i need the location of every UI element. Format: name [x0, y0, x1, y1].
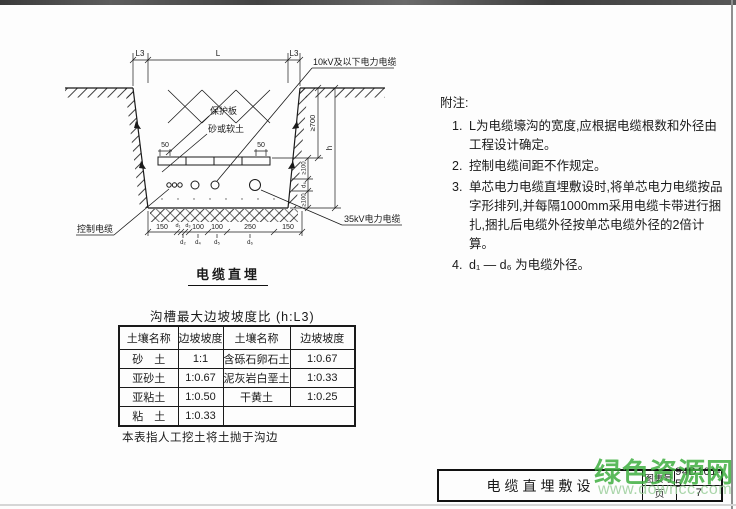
scan-edge-right — [731, 0, 733, 509]
table-row: 亚粘土 1:0.50 干黄土 1:0.25 — [119, 388, 355, 407]
dim-150-a: 150 — [156, 224, 168, 231]
table-cell: 1:0.25 — [290, 388, 355, 407]
dim-100-upper: ≥100 — [302, 161, 308, 175]
note-number: 3. — [452, 178, 469, 254]
note-text: L为电缆壕沟的宽度,应根据电缆根数和外径由工程设计确定。 — [469, 117, 728, 155]
table-row: 亚砂土 1:0.67 泥灰岩白垩土 1:0.33 — [119, 369, 355, 388]
dim-100-a: 100 — [192, 224, 204, 231]
table-row: 粘 土 1:0.33 — [119, 407, 355, 426]
table-cell: 1:1 — [178, 350, 223, 369]
dim-100-lower: ≥100 — [302, 193, 308, 207]
notes-section: 附注: 1. L为电缆壕沟的宽度,应根据电缆根数和外径由工程设计确定。 2. 控… — [440, 94, 728, 277]
label-35kv-cable: 35kV电力电缆 — [344, 213, 401, 224]
watermark-site-url: www.downcc.com — [598, 481, 732, 499]
dim-h: h — [325, 146, 334, 150]
table-cell: 亚粘土 — [119, 388, 178, 407]
table-cell: 亚砂土 — [119, 369, 178, 388]
note-text: d₁ — d₆ 为电缆外径。 — [469, 256, 728, 275]
header-slope-1: 边坡坡度 — [178, 326, 223, 350]
table-cell: 干黄土 — [223, 388, 290, 407]
table-cell: 1:0.67 — [290, 350, 355, 369]
dim-d5: d₅ — [214, 240, 220, 246]
note-number: 4. — [452, 256, 469, 275]
dim-d4: d₄ — [195, 240, 201, 246]
scan-edge-top — [0, 0, 736, 5]
dim-d3: d₃ — [185, 223, 190, 229]
note-text: 控制电缆间距不作规定。 — [469, 157, 728, 176]
table-cell: 含砾石卵石土 — [223, 350, 290, 369]
table-cell-empty — [223, 407, 355, 426]
table-cell: 1:0.33 — [290, 369, 355, 388]
dim-100-b: 100 — [211, 224, 223, 231]
figure-title-text: 电缆直埋 — [188, 264, 268, 286]
dim-150-b: 150 — [282, 224, 294, 231]
table-footnote: 本表指人工挖土将土抛于沟边 — [122, 429, 278, 445]
dim-d1: d₁ — [176, 223, 181, 229]
bedding-dots — [161, 198, 274, 199]
dim-700: ≥700 — [308, 115, 317, 132]
note-item: 4. d₁ — d₆ 为电缆外径。 — [452, 256, 728, 275]
cable-circles — [167, 180, 261, 191]
table-cell: 1:0.50 — [178, 388, 223, 407]
board-50-dimension — [158, 149, 268, 156]
dim-l: L — [216, 49, 221, 58]
table-cell: 1:0.67 — [178, 369, 223, 388]
figure-title: 电缆直埋 — [160, 264, 296, 286]
table-cell: 泥灰岩白垩土 — [223, 369, 290, 388]
dim-50-left: 50 — [161, 142, 169, 149]
table-cell: 砂 土 — [119, 350, 178, 369]
header-slope-2: 边坡坡度 — [290, 326, 355, 350]
table-caption: 沟槽最大边坡坡度比 (h:L3) — [150, 306, 315, 325]
notes-title: 附注: — [440, 94, 728, 113]
table-header-row: 土壤名称 边坡坡度 土壤名称 边坡坡度 — [119, 326, 355, 350]
note-number: 2. — [452, 157, 469, 176]
trench-cross-section-diagram: 50 50 L3 L L3 ≥700 h ≥1 — [50, 25, 430, 260]
dim-50-right: 50 — [257, 142, 265, 149]
header-soil-name-2: 土壤名称 — [223, 326, 290, 350]
note-item: 3. 单芯电力电缆直埋敷设时,将单芯电力电缆按品字形排列,并每隔1000mm采用… — [452, 178, 728, 254]
table-cell: 粘 土 — [119, 407, 178, 426]
note-item: 2. 控制电缆间距不作规定。 — [452, 157, 728, 176]
dim-d6-side: d₆ — [302, 182, 308, 188]
dim-l3-right: L3 — [290, 49, 299, 58]
dim-d6: d₆ — [247, 240, 253, 246]
scan-edge-bottom — [0, 504, 736, 506]
note-item: 1. L为电缆壕沟的宽度,应根据电缆根数和外径由工程设计确定。 — [452, 117, 728, 155]
drawing-sheet: 50 50 L3 L L3 ≥700 h ≥1 — [0, 0, 736, 509]
label-sand-soft-soil: 砂或软土 — [208, 123, 244, 134]
note-text: 单芯电力电缆直埋敷设时,将单芯电力电缆按品字形排列,并每隔1000mm采用电缆卡… — [469, 178, 728, 254]
dim-250: 250 — [244, 224, 256, 231]
label-control-cable: 控制电缆 — [77, 223, 113, 234]
label-10kv-cable: 10kV及以下电力电缆 — [313, 56, 397, 67]
header-soil-name-1: 土壤名称 — [119, 326, 178, 350]
label-protective-board: 保护板 — [210, 105, 237, 116]
slope-ratio-table: 土壤名称 边坡坡度 土壤名称 边坡坡度 砂 土 1:1 含砾石卵石土 1:0.6… — [118, 325, 356, 427]
table-cell: 1:0.33 — [178, 407, 223, 426]
dim-d2: d₂ — [180, 240, 186, 246]
note-number: 1. — [452, 117, 469, 155]
table-row: 砂 土 1:1 含砾石卵石土 1:0.67 — [119, 350, 355, 369]
dim-l3-left: L3 — [136, 49, 145, 58]
